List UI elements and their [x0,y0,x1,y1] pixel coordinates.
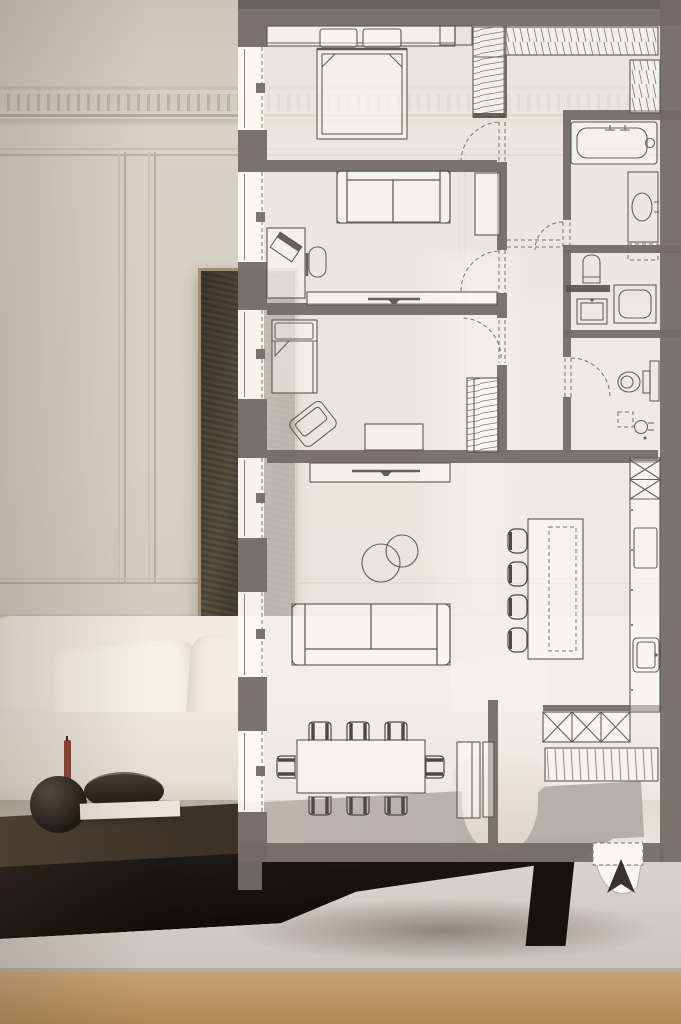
dining-table [297,740,425,793]
single-bed [272,320,317,393]
tall-cabinet [475,173,500,235]
entrance-threshold [593,843,643,865]
double-bed [317,49,407,139]
screenshot-root [0,0,681,1024]
sideboard [457,742,480,818]
floor-plan-overlay [0,0,681,1024]
kitchen-island [528,519,583,659]
pillow [363,29,401,47]
entrance-marker [593,843,643,894]
dresser [365,424,423,450]
pillow [320,29,357,47]
tv-console [310,463,450,482]
